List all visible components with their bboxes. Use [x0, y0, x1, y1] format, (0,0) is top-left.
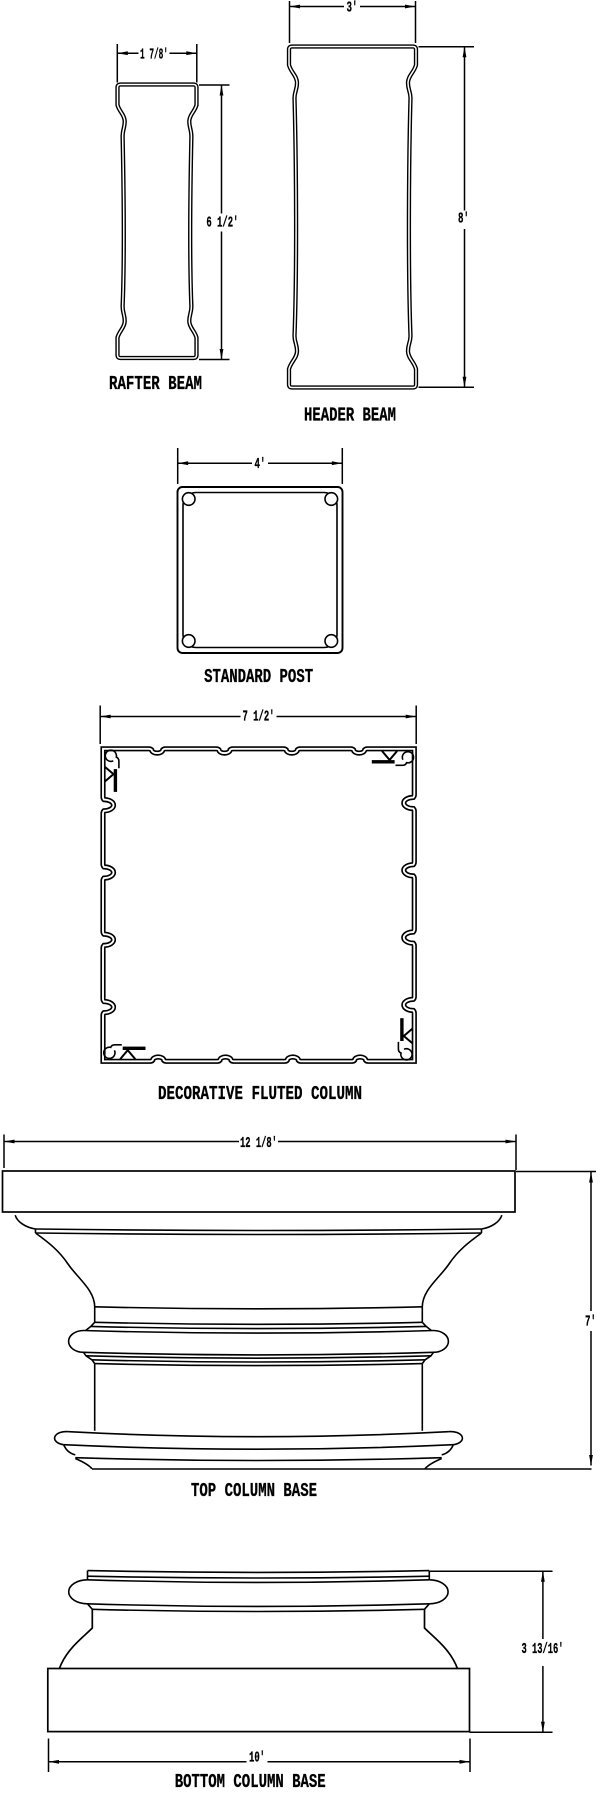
- svg-text:TOP COLUMN BASE: TOP COLUMN BASE: [191, 1480, 317, 1502]
- svg-text:1 7/8′: 1 7/8′: [140, 47, 168, 63]
- svg-text:3 13/16′: 3 13/16′: [522, 1642, 564, 1658]
- svg-text:10′: 10′: [249, 1750, 265, 1766]
- svg-text:7 1/2′: 7 1/2′: [243, 710, 275, 726]
- svg-text:RAFTER BEAM: RAFTER BEAM: [109, 373, 202, 395]
- svg-text:3′: 3′: [347, 0, 358, 16]
- svg-text:4′: 4′: [255, 457, 266, 473]
- svg-text:STANDARD POST: STANDARD POST: [204, 666, 313, 688]
- svg-text:6 1/2′: 6 1/2′: [206, 215, 238, 231]
- svg-text:HEADER BEAM: HEADER BEAM: [304, 405, 396, 427]
- svg-text:DECORATIVE FLUTED COLUMN: DECORATIVE FLUTED COLUMN: [158, 1083, 362, 1105]
- svg-text:BOTTOM COLUMN BASE: BOTTOM COLUMN BASE: [175, 1771, 326, 1793]
- svg-text:12 1/8′: 12 1/8′: [240, 1136, 277, 1152]
- svg-text:8′: 8′: [458, 211, 469, 227]
- svg-text:7′: 7′: [585, 1315, 596, 1331]
